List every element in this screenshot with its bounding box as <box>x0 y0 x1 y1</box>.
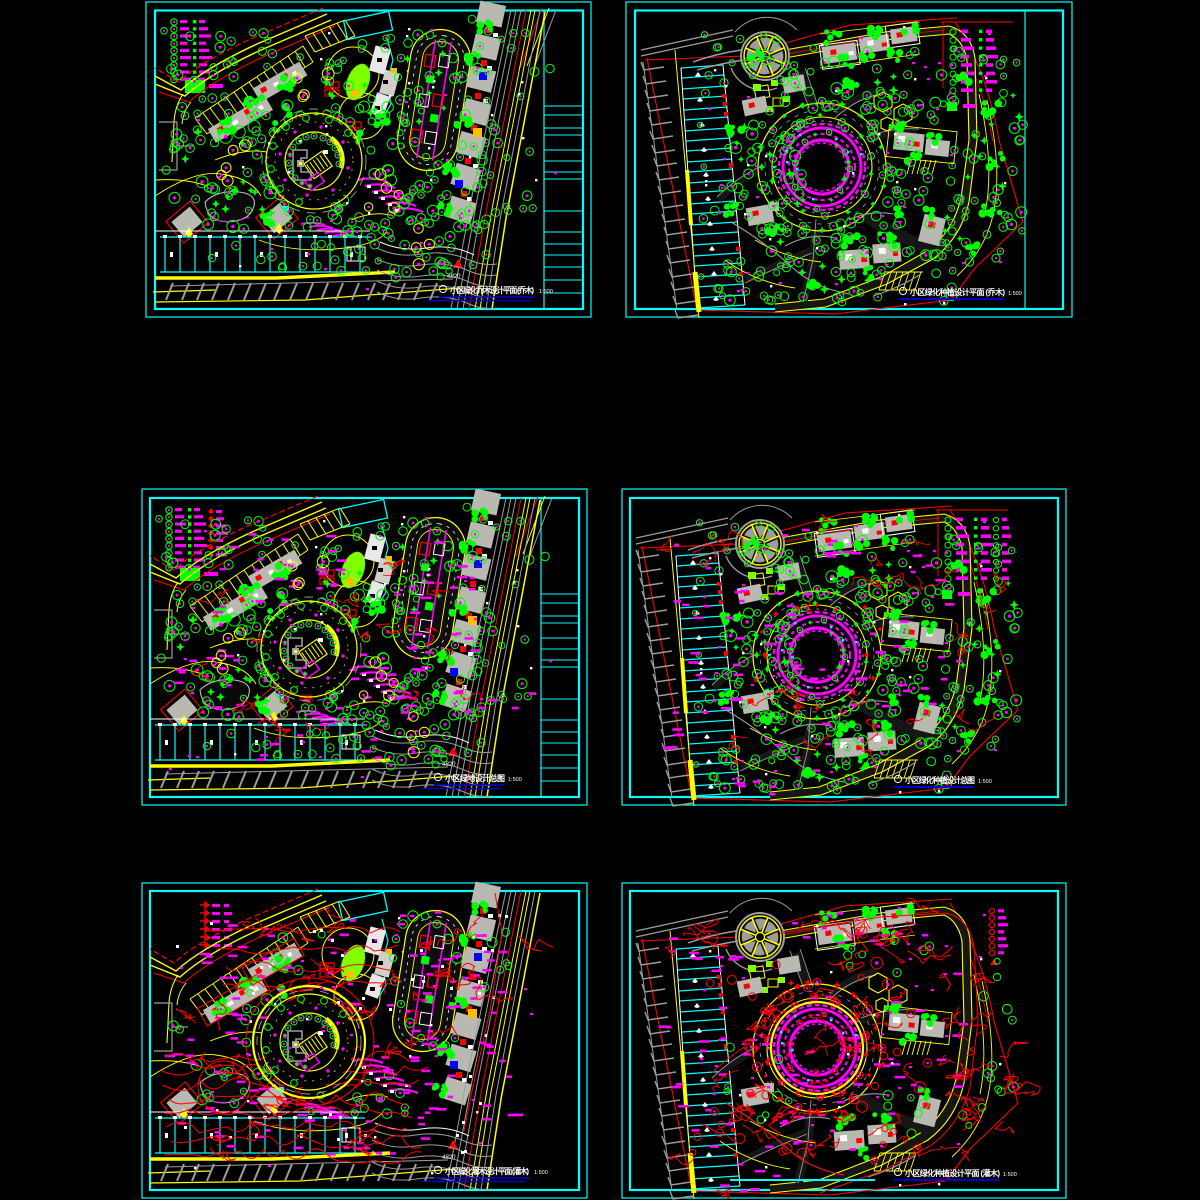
svg-text:小区绿化种植设计平面 (乔木): 小区绿化种植设计平面 (乔木) <box>909 287 1005 297</box>
svg-text:1:500: 1:500 <box>978 779 992 785</box>
svg-text:小区绿化乔木设计平面 (乔木): 小区绿化乔木设计平面 (乔木) <box>449 285 534 295</box>
svg-text:小区绿化种植设计总图: 小区绿化种植设计总图 <box>904 775 975 785</box>
svg-text:1:500: 1:500 <box>508 777 522 783</box>
svg-text:小区绿化种植设计平面 (灌木): 小区绿化种植设计平面 (灌木) <box>904 1168 1000 1178</box>
svg-text:小区绿化灌木设计平面 (灌木): 小区绿化灌木设计平面 (灌木) <box>444 1166 529 1176</box>
svg-text:1:500: 1:500 <box>1008 291 1022 297</box>
svg-text:小区绿地设计总图: 小区绿地设计总图 <box>444 773 505 783</box>
svg-text:1:500: 1:500 <box>539 289 553 295</box>
svg-text:1:500: 1:500 <box>534 1170 548 1176</box>
svg-text:1:500: 1:500 <box>1003 1172 1017 1178</box>
